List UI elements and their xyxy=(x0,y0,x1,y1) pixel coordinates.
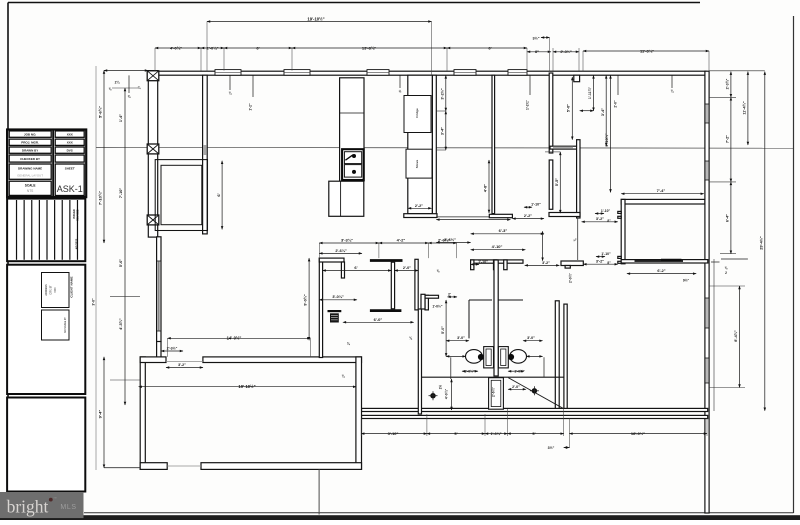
svg-text:2'-2": 2'-2" xyxy=(415,204,423,208)
svg-text:⅜: ⅜ xyxy=(437,269,440,273)
svg-text:3'-2": 3'-2" xyxy=(542,261,550,265)
svg-text:5'-6¾": 5'-6¾" xyxy=(98,106,103,118)
svg-text:1'-2⅜": 1'-2⅜" xyxy=(526,100,530,110)
svg-text:11'-3¼": 11'-3¼" xyxy=(640,48,654,53)
svg-text:6'-0": 6'-0" xyxy=(374,317,383,322)
svg-text:7'-2": 7'-2" xyxy=(726,135,730,143)
svg-text:SCALE: SCALE xyxy=(25,184,36,188)
svg-text:9'-10¼": 9'-10¼" xyxy=(605,133,609,147)
svg-text:NTS: NTS xyxy=(27,189,33,193)
svg-text:3'-0¼": 3'-0¼" xyxy=(332,295,344,299)
svg-text:1'-0½": 1'-0½" xyxy=(432,304,443,308)
svg-text:DRAWN BY: DRAWN BY xyxy=(22,148,38,152)
svg-text:14'-0½": 14'-0½" xyxy=(227,336,242,341)
svg-text:1'-10": 1'-10" xyxy=(478,260,488,264)
svg-text:3'-0": 3'-0" xyxy=(527,336,535,340)
svg-text:CITY, ST: CITY, ST xyxy=(51,285,53,295)
svg-text:2: 2 xyxy=(725,271,727,275)
svg-text:Stove: Stove xyxy=(415,160,419,169)
svg-text:2'-0": 2'-0" xyxy=(614,100,618,108)
svg-text:8": 8" xyxy=(535,50,539,54)
svg-text:¾: ¾ xyxy=(138,86,141,90)
svg-text:SHEET: SHEET xyxy=(65,167,75,171)
svg-text:¾: ¾ xyxy=(229,92,232,96)
svg-text:1'-6¼": 1'-6¼" xyxy=(490,432,501,436)
svg-text:2'-0¼": 2'-0¼" xyxy=(569,273,573,283)
svg-text:5': 5' xyxy=(454,431,457,436)
svg-text:3'-2": 3'-2" xyxy=(596,217,604,221)
svg-text:4'-8": 4'-8" xyxy=(484,184,488,192)
svg-text:2'-2": 2'-2" xyxy=(524,214,532,218)
svg-text:7'-4": 7'-4" xyxy=(657,188,666,193)
svg-text:1'-10": 1'-10" xyxy=(601,209,611,213)
svg-text:⅜: ⅜ xyxy=(128,95,131,99)
svg-text:1'-10": 1'-10" xyxy=(531,203,541,207)
svg-text:3'-10": 3'-10" xyxy=(388,431,399,436)
svg-text:NO SCALE FT: NO SCALE FT xyxy=(64,317,67,333)
svg-text:⅜: ⅜ xyxy=(573,238,577,241)
svg-text:3'-3¼": 3'-3¼" xyxy=(341,237,353,242)
svg-text:⅜: ⅜ xyxy=(109,87,112,91)
svg-text:1'-4": 1'-4" xyxy=(119,114,123,122)
svg-text:ADDRESS: ADDRESS xyxy=(45,284,48,296)
svg-text:11'-4¾": 11'-4¾" xyxy=(743,101,747,114)
svg-text:JOB NO.: JOB NO. xyxy=(24,132,37,136)
svg-text:2½: 2½ xyxy=(439,384,443,389)
svg-text:19'-10½": 19'-10½" xyxy=(307,17,324,22)
svg-text:3'-2½": 3'-2½" xyxy=(440,88,444,100)
svg-text:MLS: MLS xyxy=(60,504,76,511)
svg-text:9½": 9½" xyxy=(683,279,690,283)
svg-text:5'-0": 5'-0" xyxy=(567,104,571,112)
svg-text:ASK-1: ASK-1 xyxy=(57,184,83,194)
svg-text:9'-0¾": 9'-0¾" xyxy=(304,294,308,306)
svg-text:DVS: DVS xyxy=(67,148,73,152)
svg-text:1'-0½": 1'-0½" xyxy=(514,370,525,374)
svg-text:3'-6": 3'-6" xyxy=(92,298,96,306)
svg-text:2'-0": 2'-0" xyxy=(403,266,411,270)
svg-text:5'-6": 5'-6" xyxy=(119,259,123,267)
svg-text:7'-10": 7'-10" xyxy=(119,188,123,199)
svg-text:29'-4½": 29'-4½" xyxy=(759,236,763,250)
svg-text:2'-3½": 2'-3½" xyxy=(167,346,178,350)
svg-text:2'-3½": 2'-3½" xyxy=(560,50,572,54)
svg-text:6': 6' xyxy=(256,45,259,50)
svg-text:3'-0": 3'-0" xyxy=(457,336,465,340)
svg-text:2'-6¼": 2'-6¼" xyxy=(438,237,450,242)
svg-text:19'-10½": 19'-10½" xyxy=(238,384,255,389)
svg-text:PROJ. MGR.: PROJ. MGR. xyxy=(21,140,39,144)
svg-text:8": 8" xyxy=(607,261,611,265)
svg-text:4'-5¾": 4'-5¾" xyxy=(119,318,123,330)
svg-text:GENERAL LAYOUT: GENERAL LAYOUT xyxy=(17,173,43,177)
svg-text:3'-2": 3'-2" xyxy=(178,363,186,367)
svg-text:5': 5' xyxy=(532,431,535,436)
svg-text:TM: TM xyxy=(53,498,56,500)
svg-text:DRAWING NAME: DRAWING NAME xyxy=(18,167,42,171)
svg-text:CLIENT NAME: CLIENT NAME xyxy=(70,276,74,297)
svg-text:2'-6¼": 2'-6¼" xyxy=(492,387,496,397)
svg-text:0000: 0000 xyxy=(55,287,57,293)
svg-text:¾: ¾ xyxy=(671,90,674,94)
svg-text:6': 6' xyxy=(488,45,491,50)
svg-text:5'-0": 5'-0" xyxy=(441,326,445,334)
svg-text:6': 6' xyxy=(354,265,357,270)
svg-text:4/1/2023: 4/1/2023 xyxy=(74,238,78,249)
svg-text:2'-3¾": 2'-3¾" xyxy=(726,78,730,89)
svg-text:6': 6' xyxy=(216,193,221,196)
svg-text:6'-2": 6'-2" xyxy=(657,269,665,273)
svg-text:REVISED: REVISED xyxy=(76,209,80,221)
svg-text:7'-10¾": 7'-10¾" xyxy=(98,191,103,205)
svg-text:3½": 3½" xyxy=(548,446,555,450)
svg-text:XXX: XXX xyxy=(67,140,73,144)
svg-text:9'-4": 9'-4" xyxy=(98,410,103,419)
svg-text:3½": 3½" xyxy=(532,37,539,41)
svg-text:5'-5": 5'-5" xyxy=(555,178,559,186)
svg-text:13'-8¾": 13'-8¾" xyxy=(362,45,376,50)
svg-text:2'-0¼": 2'-0¼" xyxy=(207,45,219,50)
svg-text:3'-4": 3'-4" xyxy=(440,127,444,135)
svg-text:1'-10": 1'-10" xyxy=(601,252,611,256)
svg-text:4'-10": 4'-10" xyxy=(492,244,503,249)
svg-text:8'-4¾": 8'-4¾" xyxy=(734,330,738,342)
svg-text:ISSUED: ISSUED xyxy=(72,209,76,219)
svg-text:6'-3": 6'-3" xyxy=(499,228,508,233)
svg-text:4'-0¼": 4'-0¼" xyxy=(445,389,449,400)
svg-text:2': 2' xyxy=(448,292,451,296)
svg-text:CHECKED BY: CHECKED BY xyxy=(20,157,40,161)
svg-text:18'-0½": 18'-0½" xyxy=(631,431,645,436)
svg-text:1'-0½": 1'-0½" xyxy=(464,370,475,374)
svg-text:bright: bright xyxy=(7,497,49,517)
svg-text:4'-0¾": 4'-0¾" xyxy=(170,45,182,50)
svg-text:8": 8" xyxy=(607,219,611,223)
svg-text:3'-2": 3'-2" xyxy=(596,260,604,264)
svg-text:⅜: ⅜ xyxy=(725,266,728,270)
svg-text:3'-4": 3'-4" xyxy=(601,108,605,116)
svg-text:2'-6¼": 2'-6¼" xyxy=(335,249,347,253)
svg-text:1'-11¾": 1'-11¾" xyxy=(588,87,592,100)
svg-text:6'-4": 6'-4" xyxy=(726,214,730,222)
svg-text:½: ½ xyxy=(399,90,402,94)
svg-text:1'-2": 1'-2" xyxy=(249,103,253,111)
svg-text:2'-0": 2'-0" xyxy=(512,385,520,389)
svg-text:XXX: XXX xyxy=(67,132,73,136)
svg-text:4'-2": 4'-2" xyxy=(397,237,406,242)
svg-text:Fridge: Fridge xyxy=(415,108,419,118)
